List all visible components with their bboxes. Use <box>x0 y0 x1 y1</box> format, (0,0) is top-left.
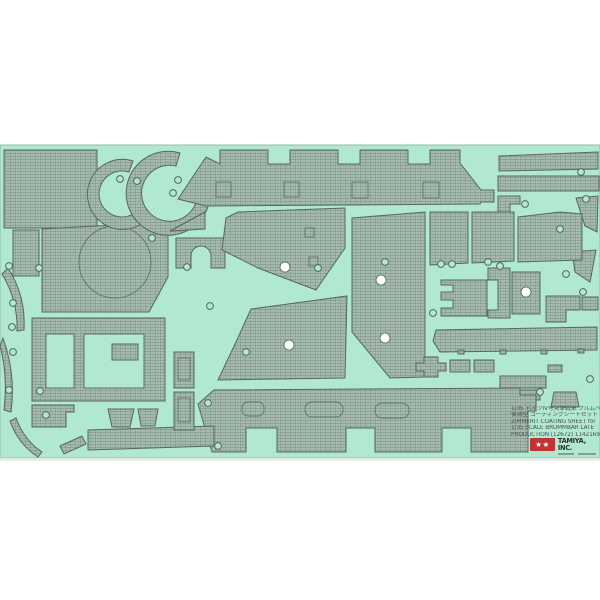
superstructure-roof-panel <box>178 150 494 206</box>
fender-long-right <box>433 327 597 352</box>
punch-ring <box>149 235 156 242</box>
punch-ring <box>578 169 585 176</box>
inset-plate <box>112 344 138 360</box>
punch-ring <box>315 265 322 272</box>
fender-panel-1 <box>430 212 468 265</box>
brand-block: ★★ TAMIYA, INC. <box>530 438 600 455</box>
punch-ring <box>207 303 214 310</box>
punch-ring <box>6 263 13 270</box>
coating-sheet <box>0 145 600 461</box>
product-label-text: 1/35 ドイツIV号突撃戦車 ブルムベア 後期型 コーティングシートセット Z… <box>511 406 600 438</box>
punch-ring <box>117 176 124 183</box>
punch-ring <box>485 259 492 266</box>
label-line-en-3: PRODUCTION (12672) 1142169 <box>511 432 600 438</box>
fine-print-bar <box>578 453 596 455</box>
bracket-piece-1 <box>441 280 487 316</box>
punch-ring <box>580 289 587 296</box>
punch-ring <box>583 196 590 203</box>
frame-window <box>84 334 144 388</box>
small-plate <box>474 360 494 372</box>
frame-window <box>46 334 74 388</box>
punch-ring <box>6 387 13 394</box>
punch-ring <box>537 389 544 396</box>
punch-ring <box>9 324 16 331</box>
panel-narrow-left <box>13 230 39 276</box>
small-plate <box>450 360 470 372</box>
small-rect-right <box>582 297 598 310</box>
side-panel-right <box>518 212 582 262</box>
tiny-bar <box>548 365 562 372</box>
trapezoid-right <box>551 392 579 407</box>
punch-ring <box>587 376 594 383</box>
tamiya-twin-star-logo-icon: ★★ <box>530 438 555 451</box>
punch-hole <box>284 340 294 350</box>
fender-long-left <box>88 426 214 450</box>
punch-ring <box>449 261 456 268</box>
punch-hole <box>521 287 531 297</box>
sheet-bottom-shadow <box>0 458 600 461</box>
product-photo: 1/35 ドイツIV号突撃戦車 ブルムベア 後期型 コーティングシートセット Z… <box>0 0 600 600</box>
bar-right-a <box>500 376 546 388</box>
punch-ring <box>43 412 50 419</box>
punch-ring <box>170 190 177 197</box>
fender-tab <box>541 350 547 354</box>
vertical-piece-upper <box>174 352 194 388</box>
punch-ring <box>243 349 250 356</box>
punch-ring <box>175 177 182 184</box>
label-line-jp-2: 後期型 コーティングシートセット <box>511 412 600 418</box>
punch-ring <box>430 310 437 317</box>
bucket-piece-1 <box>108 409 134 427</box>
punch-hole <box>376 275 386 285</box>
punch-ring <box>205 400 212 407</box>
label-line-en-2: 1/35 SCALE BRUMMBAR LATE <box>511 425 600 431</box>
punch-ring <box>215 443 222 450</box>
punch-ring <box>497 263 504 270</box>
punch-hole <box>280 262 290 272</box>
punch-ring <box>438 261 445 268</box>
punch-ring <box>134 178 141 185</box>
punch-ring <box>10 349 17 356</box>
logo-fine-print <box>558 453 600 455</box>
punch-ring <box>563 271 570 278</box>
long-strip-top-2 <box>498 176 599 191</box>
punch-ring <box>557 226 564 233</box>
bucket-piece-2 <box>138 409 158 426</box>
punch-ring <box>522 201 529 208</box>
fender-tab <box>578 349 584 353</box>
punch-ring <box>36 265 43 272</box>
punch-ring <box>37 388 44 395</box>
punch-hole <box>380 333 390 343</box>
fender-tab <box>458 350 464 354</box>
punch-ring <box>382 259 389 266</box>
panel-large-left <box>4 150 97 228</box>
punch-ring <box>10 300 17 307</box>
fender-panel-2 <box>472 212 514 263</box>
brand-name: TAMIYA, INC. <box>558 438 600 451</box>
fine-print-bar <box>558 453 574 455</box>
punch-ring <box>184 264 191 271</box>
fender-tab <box>500 350 506 354</box>
zimmerit-sheet-graphic <box>0 0 600 600</box>
